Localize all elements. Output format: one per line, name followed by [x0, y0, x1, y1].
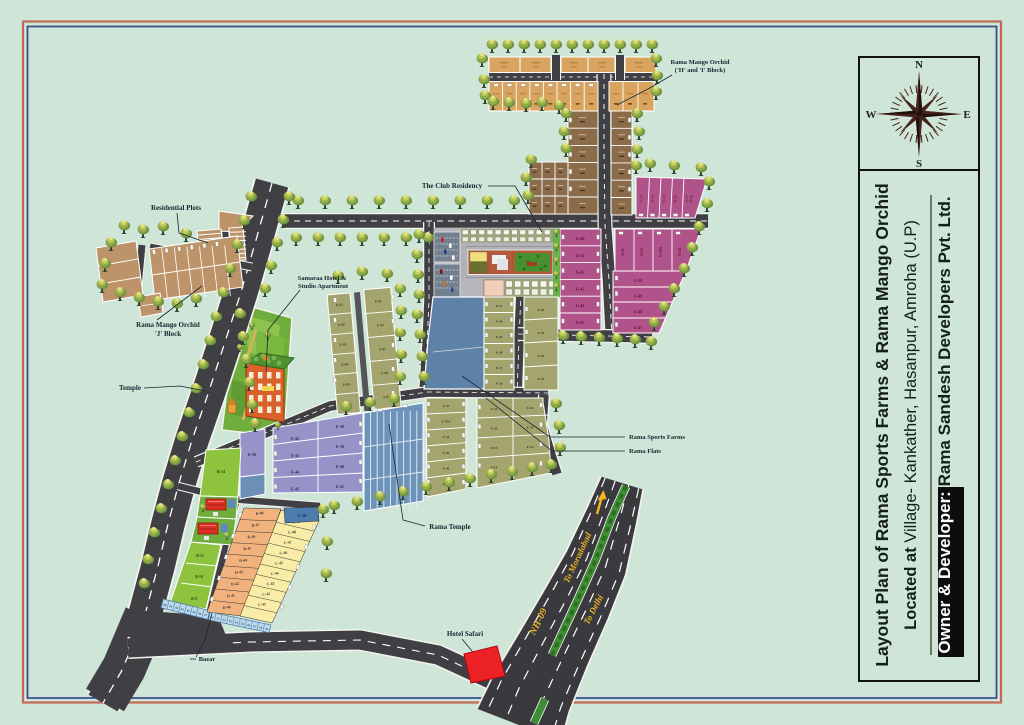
svg-text:E-03: E-03 [339, 342, 346, 347]
svg-text:D-42: D-42 [231, 582, 239, 587]
svg-text:F-03: F-03 [379, 347, 386, 352]
svg-text:F-42A: F-42A [442, 420, 451, 424]
svg-text:The Club Residency: The Club Residency [422, 182, 483, 190]
svg-text:C-50: C-50 [298, 513, 306, 518]
svg-text:'J' Block: 'J' Block [155, 330, 181, 338]
svg-text:S: S [916, 158, 922, 170]
svg-text:G-45: G-45 [576, 320, 585, 325]
svg-text:F-18: F-18 [491, 466, 498, 470]
svg-text:E-38: E-38 [336, 424, 344, 429]
svg-text:F-44: F-44 [443, 435, 450, 439]
svg-text:F-28: F-28 [496, 351, 503, 355]
svg-text:G-43: G-43 [576, 286, 585, 291]
svg-text:N: N [915, 59, 923, 71]
svg-text:G-48: G-48 [634, 310, 642, 314]
svg-text:F-45: F-45 [443, 451, 450, 455]
svg-text:Samaraa Hotel &: Samaraa Hotel & [298, 275, 347, 282]
svg-text:E-41: E-41 [336, 484, 344, 489]
svg-text:F-26: F-26 [496, 382, 503, 386]
svg-text:F-29: F-29 [496, 335, 503, 339]
svg-text:C-45: C-45 [275, 561, 283, 566]
svg-text:F-46: F-46 [443, 466, 450, 470]
svg-text:Rama Flats: Rama Flats [629, 448, 661, 455]
svg-text:F-35: F-35 [538, 377, 545, 381]
svg-text:C-42: C-42 [262, 592, 270, 597]
svg-text:D-45: D-45 [243, 546, 251, 551]
svg-text:G-76: G-76 [673, 195, 678, 203]
svg-text:D-48: D-48 [256, 511, 264, 516]
svg-text:E-02: E-02 [338, 322, 345, 327]
svg-text:F-04: F-04 [381, 371, 388, 376]
svg-text:('H' and 'I' Block): ('H' and 'I' Block) [675, 67, 725, 74]
svg-text:C-47: C-47 [284, 540, 292, 545]
svg-text:D-41: D-41 [227, 593, 235, 598]
svg-text:B-12: B-12 [196, 554, 204, 558]
svg-text:G-54: G-54 [678, 248, 682, 256]
svg-text:G-49: G-49 [634, 295, 642, 299]
svg-text:Rama Sports Farms: Rama Sports Farms [629, 434, 685, 441]
svg-text:G-44: G-44 [576, 303, 586, 308]
svg-text:B-8: B-8 [191, 597, 197, 601]
svg-text:F-30: F-30 [496, 320, 503, 324]
svg-text:G-50: G-50 [634, 279, 642, 283]
svg-text:F-24: F-24 [527, 445, 534, 449]
svg-text:E-40: E-40 [336, 464, 344, 469]
svg-text:F-01: F-01 [375, 299, 382, 304]
svg-text:E-42: E-42 [291, 436, 299, 441]
svg-text:G-40: G-40 [576, 236, 585, 241]
svg-text:C-46: C-46 [279, 551, 287, 556]
svg-text:F-25: F-25 [527, 426, 534, 430]
svg-text:Hotel Safari: Hotel Safari [447, 630, 483, 638]
svg-text:Located at Village- Kankather,: Located at Village- Kankather, Hasanpur,… [902, 220, 920, 630]
svg-text:Rama Temple: Rama Temple [429, 523, 470, 531]
svg-text:C-48: C-48 [288, 530, 296, 535]
svg-text:C-43: C-43 [266, 582, 274, 587]
svg-text:D-40: D-40 [223, 605, 231, 610]
svg-text:Rama Mango Orchid: Rama Mango Orchid [136, 321, 200, 329]
svg-text:F-31: F-31 [496, 304, 503, 308]
svg-text:G-42: G-42 [576, 270, 585, 275]
svg-text:F-21: F-21 [491, 407, 498, 411]
svg-text:Layout Plan of Rama Sports Far: Layout Plan of Rama Sports Farms & Rama … [872, 183, 892, 666]
svg-text:Rama Mango Orchid: Rama Mango Orchid [670, 59, 729, 66]
svg-text:C-41: C-41 [258, 602, 266, 607]
svg-text:Temple: Temple [119, 384, 141, 392]
svg-text:E-04: E-04 [341, 362, 348, 367]
svg-text:D-43: D-43 [235, 570, 243, 575]
svg-text:G-52A: G-52A [659, 247, 663, 258]
svg-text:F-27: F-27 [496, 366, 503, 370]
svg-text:C-44: C-44 [271, 571, 279, 576]
svg-text:G-75: G-75 [662, 195, 667, 203]
svg-text:E-05: E-05 [343, 382, 350, 387]
svg-text:G-73: G-73 [639, 195, 644, 203]
svg-text:E-01: E-01 [336, 303, 343, 308]
svg-text:E-45: E-45 [291, 486, 299, 491]
svg-text:F-22: F-22 [527, 406, 534, 410]
svg-text:Owner & Developer: Rama Sandes: Owner & Developer: Rama Sandesh Develope… [935, 196, 954, 653]
svg-text:W: W [866, 109, 877, 121]
svg-text:D-47: D-47 [251, 523, 259, 528]
svg-text:F-34: F-34 [538, 331, 545, 335]
svg-text:Residential Plots: Residential Plots [151, 204, 201, 212]
svg-text:Bazar: Bazar [199, 656, 216, 663]
svg-text:E-43: E-43 [291, 453, 299, 458]
svg-text:G-52: G-52 [640, 248, 644, 256]
svg-text:G-47: G-47 [634, 326, 642, 330]
svg-text:F-33: F-33 [538, 354, 545, 358]
svg-text:D-44: D-44 [239, 558, 247, 563]
svg-text:B-14: B-14 [217, 469, 225, 474]
svg-text:F-36: F-36 [538, 308, 545, 312]
svg-text:F-20: F-20 [491, 427, 498, 431]
svg-text:E-50: E-50 [248, 452, 256, 457]
svg-text:F-42: F-42 [443, 404, 450, 408]
svg-text:D-46: D-46 [247, 535, 255, 540]
svg-text:E: E [963, 109, 970, 121]
svg-text:B-10: B-10 [195, 575, 203, 579]
svg-text:Studio Apartment: Studio Apartment [298, 283, 349, 290]
svg-text:G-41: G-41 [576, 253, 585, 258]
svg-text:F-02: F-02 [377, 323, 384, 328]
svg-text:G-74: G-74 [650, 195, 655, 203]
svg-text:G-51: G-51 [621, 248, 625, 256]
svg-text:E-44: E-44 [291, 470, 299, 475]
svg-text:F-19: F-19 [491, 446, 498, 450]
svg-text:E-39: E-39 [336, 444, 344, 449]
